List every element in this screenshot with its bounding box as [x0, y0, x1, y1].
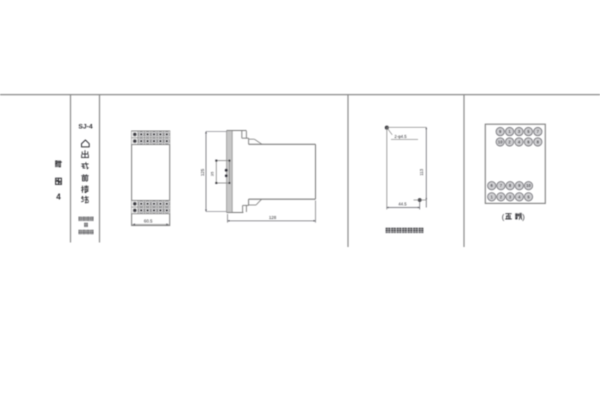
svg-text:2-φ4.5: 2-φ4.5: [394, 134, 407, 139]
svg-text:128: 128: [269, 215, 277, 220]
svg-text:44.5: 44.5: [398, 202, 407, 207]
svg-text:113: 113: [419, 168, 424, 175]
svg-text:125: 125: [200, 168, 205, 176]
svg-text:60.5: 60.5: [144, 219, 153, 224]
svg-text:35: 35: [210, 172, 215, 176]
svg-text:4: 4: [56, 192, 61, 201]
svg-text:SJ-4: SJ-4: [78, 124, 93, 131]
svg-text:10: 10: [498, 139, 503, 144]
svg-text:10: 10: [526, 183, 531, 188]
